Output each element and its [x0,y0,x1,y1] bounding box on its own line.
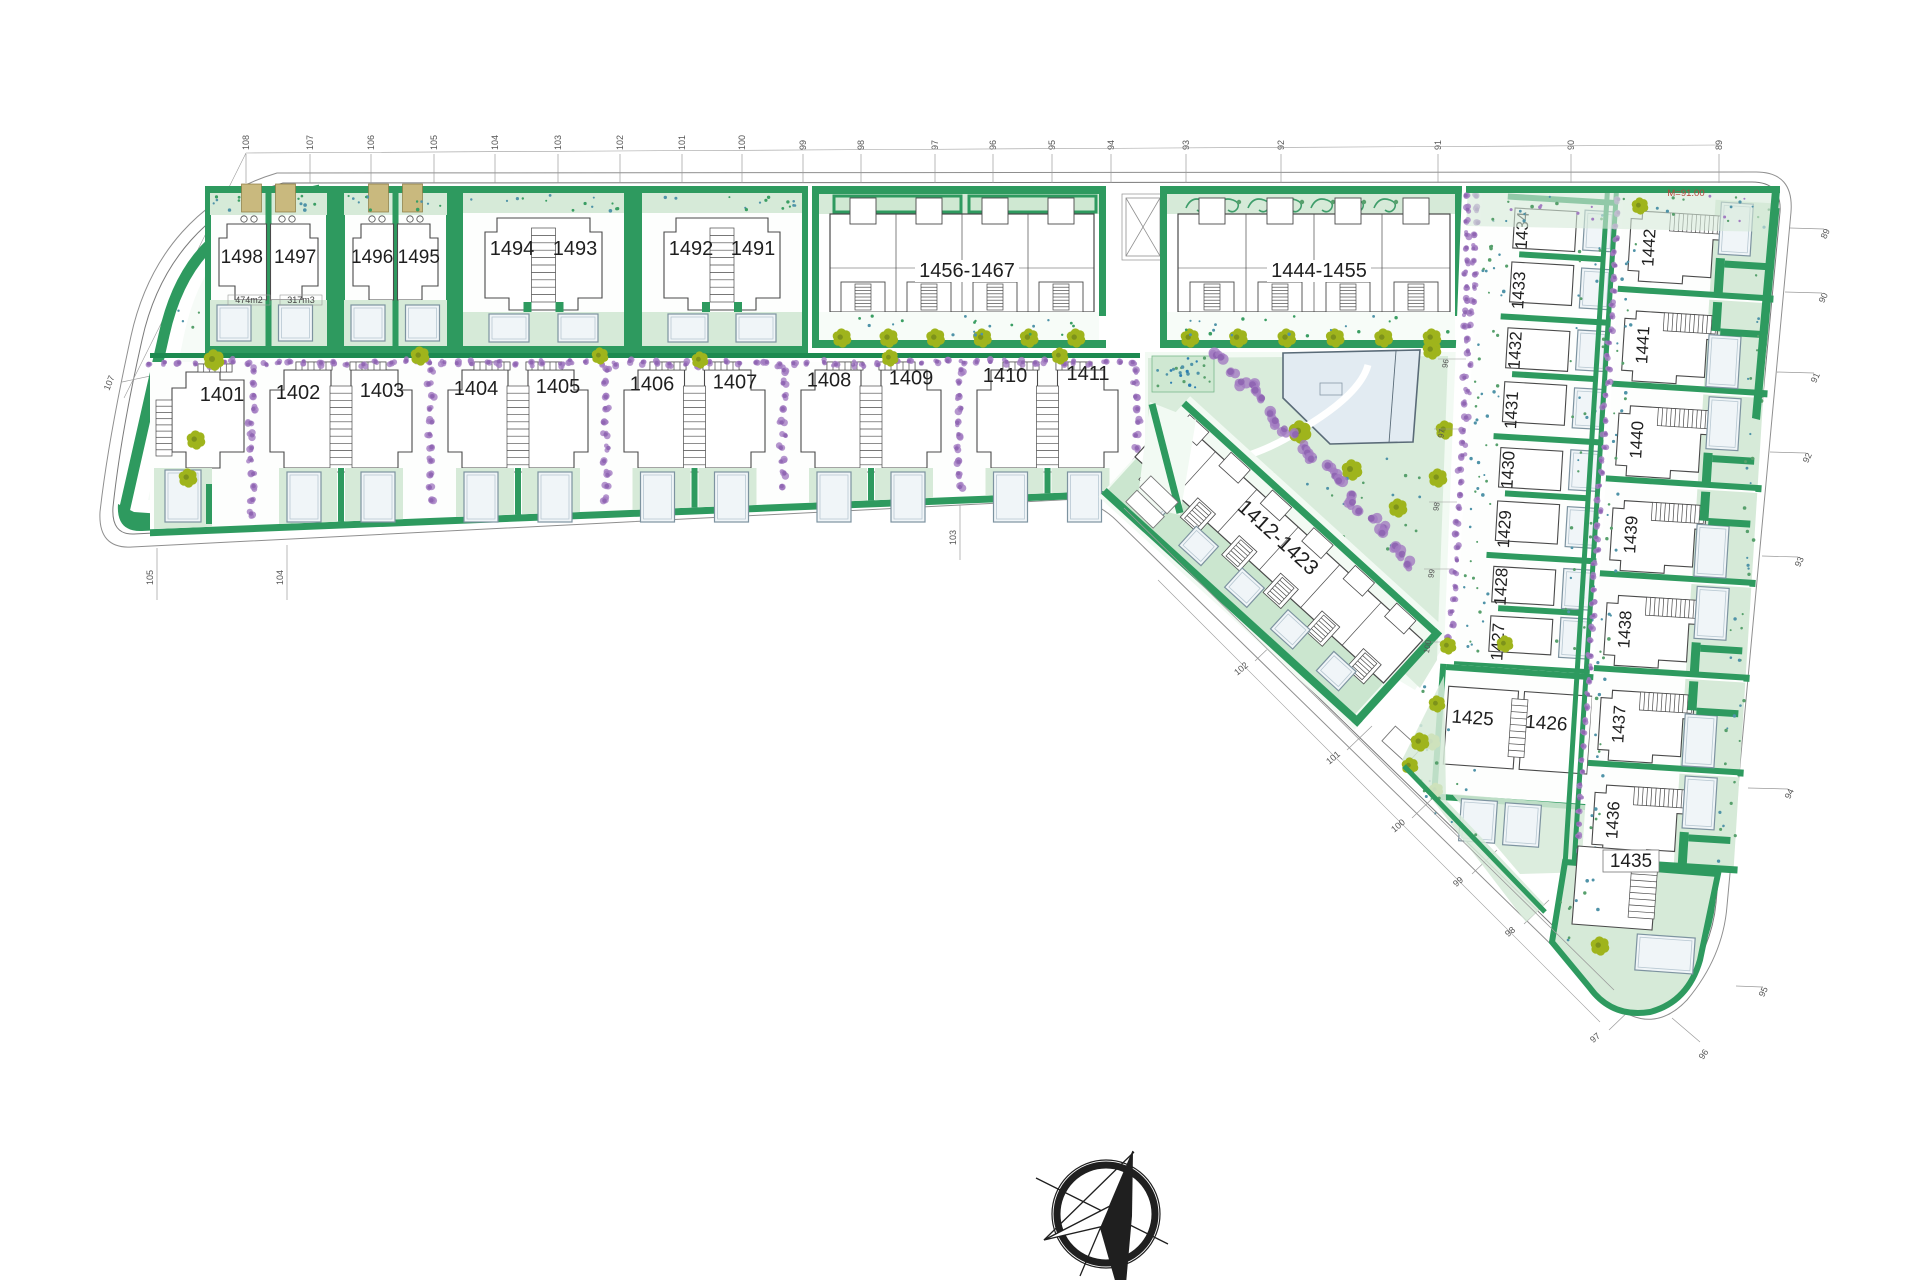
svg-text:1498: 1498 [221,247,263,268]
svg-text:96: 96 [988,140,998,150]
svg-text:1410: 1410 [983,365,1028,387]
svg-text:1431: 1431 [1501,391,1522,430]
svg-text:1439: 1439 [1620,515,1641,554]
svg-text:1426: 1426 [1525,712,1569,736]
svg-text:1425: 1425 [1451,707,1495,731]
svg-text:1437: 1437 [1608,705,1629,744]
svg-text:1495: 1495 [398,247,440,268]
svg-text:99: 99 [798,140,808,150]
svg-text:1438: 1438 [1614,610,1635,649]
svg-text:103: 103 [948,530,958,545]
svg-text:90: 90 [1566,140,1576,150]
svg-text:106: 106 [366,135,376,150]
svg-text:1491: 1491 [731,238,776,260]
svg-text:97: 97 [930,140,940,150]
svg-text:1442: 1442 [1638,228,1659,267]
svg-text:1408: 1408 [807,369,852,391]
svg-text:1402: 1402 [276,382,321,404]
svg-text:103: 103 [553,135,563,150]
svg-text:1497: 1497 [274,247,316,268]
svg-text:1492: 1492 [669,238,714,260]
svg-text:1496: 1496 [351,247,393,268]
svg-text:1404: 1404 [454,378,499,400]
svg-text:1430: 1430 [1497,450,1518,489]
svg-text:1428: 1428 [1491,567,1512,606]
svg-text:1436: 1436 [1602,801,1623,840]
svg-text:105: 105 [429,135,439,150]
svg-text:1440: 1440 [1626,420,1647,459]
svg-text:102: 102 [615,135,625,150]
svg-text:1401: 1401 [200,384,245,406]
svg-text:92: 92 [1276,140,1286,150]
svg-text:108: 108 [241,135,251,150]
svg-text:91: 91 [1433,140,1443,150]
svg-text:1432: 1432 [1505,331,1526,370]
svg-text:98: 98 [856,140,866,150]
svg-text:474m2: 474m2 [235,295,263,305]
svg-text:1433: 1433 [1508,271,1529,310]
svg-text:1444-1455: 1444-1455 [1271,260,1367,282]
svg-text:1407: 1407 [713,372,758,394]
svg-text:1441: 1441 [1632,326,1653,365]
svg-text:317m3: 317m3 [287,295,315,305]
svg-text:1409: 1409 [889,367,934,389]
svg-text:104: 104 [275,570,285,585]
svg-text:93: 93 [1181,140,1191,150]
svg-text:100: 100 [737,135,747,150]
svg-text:101: 101 [677,135,687,150]
svg-text:1493: 1493 [553,238,598,260]
svg-text:1403: 1403 [360,380,405,402]
svg-text:1429: 1429 [1494,510,1515,549]
svg-text:107: 107 [305,135,315,150]
svg-text:1494: 1494 [490,238,535,260]
svg-text:105: 105 [145,570,155,585]
svg-text:1405: 1405 [536,376,581,398]
svg-text:1435: 1435 [1610,851,1652,872]
svg-text:104: 104 [490,135,500,150]
svg-text:1406: 1406 [630,374,675,396]
svg-text:1456-1467: 1456-1467 [919,260,1015,282]
